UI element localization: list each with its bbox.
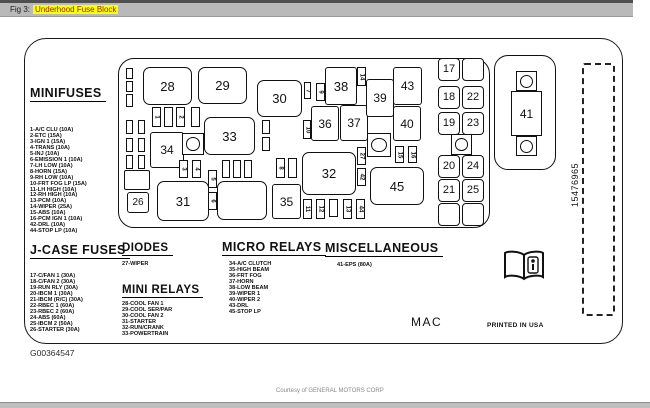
minifuse-blank — [138, 155, 145, 169]
component-box-37: 37 — [340, 105, 368, 141]
bolt-hole-icon — [520, 140, 533, 153]
legend-miscellaneous-heading: MISCELLANEOUS — [325, 241, 443, 257]
legend-jcase-fuses: J-CASE FUSES 17-C/FAN 1 (30A)18-C/FAN 2 … — [30, 241, 130, 334]
legend-diodes: DIODES 27-WIPER — [122, 238, 173, 268]
legend-miscellaneous: MISCELLANEOUS 41-EPS (80A) — [325, 239, 443, 269]
jcase-fuse-22: 22 — [462, 86, 484, 109]
component-box-38: 38 — [325, 67, 357, 105]
minifuse-blank — [138, 120, 145, 134]
legend-micro-relays: MICRO RELAYS 34-A/C CLUTCH35-HIGH BEAM36… — [222, 238, 326, 316]
jcase-fuse-21: 21 — [438, 179, 460, 202]
minifuse-6: 6 — [208, 192, 217, 210]
component-box-36: 36 — [311, 106, 339, 141]
minifuse-blank — [126, 155, 133, 169]
component-box-28: 28 — [143, 67, 192, 105]
minifuse-11: 11 — [303, 199, 312, 219]
bolt-hole — [451, 134, 472, 155]
minifuse-27: 27 — [357, 147, 366, 165]
minifuse-15: 15 — [395, 146, 404, 163]
legend-item: 44-STOP LP (10A) — [30, 229, 106, 235]
component-box-40: 40 — [393, 106, 421, 141]
minifuse-44: 44 — [356, 199, 365, 219]
component-box-33: 33 — [204, 117, 255, 155]
minifuse-blank — [329, 199, 338, 217]
mega-fuse-41: 41 — [511, 91, 542, 136]
legend-item: 41-EPS (80A) — [337, 263, 443, 269]
mega-fuse-top-terminal — [516, 71, 537, 91]
minifuse-9: 9 — [316, 83, 325, 101]
minifuse-blank — [191, 107, 200, 127]
legend-diodes-heading: DIODES — [122, 242, 173, 256]
minifuse-42: 42 — [357, 168, 366, 186]
minifuse-1: 1 — [152, 107, 161, 127]
minifuse-3: 3 — [179, 160, 188, 178]
jcase-fuse-25: 25 — [462, 179, 484, 202]
legend-item: 33-POWERTRAIN — [122, 332, 203, 338]
mega-fuse-bottom-terminal — [516, 136, 537, 156]
figure-id-label: G00364547 — [30, 348, 74, 358]
minifuse-blank — [233, 160, 241, 178]
jcase-fuse-blank — [462, 203, 484, 226]
minifuse-blank — [262, 137, 270, 151]
legend-jcase-heading: J-CASE FUSES — [30, 243, 130, 259]
jcase-fuse-19: 19 — [438, 112, 460, 135]
legend-diodes-list: 27-WIPER — [122, 262, 173, 268]
minifuse-blank — [126, 120, 133, 134]
bolt-hole — [367, 133, 391, 157]
jcase-fuse-23: 23 — [462, 112, 484, 135]
mac-label: MAC — [411, 315, 442, 329]
minifuse-7: 7 — [304, 82, 311, 99]
minifuse-blank — [288, 158, 297, 178]
component-box-29: 29 — [198, 67, 247, 104]
component-box-39: 39 — [366, 79, 394, 117]
legend-micro-relays-heading: MICRO RELAYS — [222, 240, 326, 256]
minifuse-14: 14 — [357, 67, 366, 86]
legend-minifuses-list: 1-A/C CLU (10A)2-ETC (15A)3-IGN 1 (15A)4… — [30, 128, 106, 235]
minifuse-13: 13 — [343, 199, 352, 219]
part-number-vertical: 15476965 — [570, 149, 580, 221]
minifuse-blank — [126, 81, 133, 92]
minifuse-blank — [126, 68, 133, 79]
minifuse-10: 10 — [303, 120, 311, 139]
legend-item: 26-STARTER (30A) — [30, 328, 130, 334]
legend-mini-relays-heading: MINI RELAYS — [122, 284, 203, 298]
component-box-blank — [217, 181, 267, 220]
legend-jcase-list: 17-C/FAN 1 (30A)18-C/FAN 2 (30A)19-RUN R… — [30, 274, 130, 334]
minifuse-2: 2 — [176, 107, 185, 127]
minifuse-12: 12 — [316, 199, 325, 219]
connector-slot-dashed — [582, 63, 615, 316]
legend-mini-relays-list: 28-COOL FAN 129-COOL SER/PAR30-COOL FAN … — [122, 302, 203, 338]
component-box-45: 45 — [370, 167, 424, 205]
minifuse-4: 4 — [192, 160, 201, 178]
legend-mini-relays: MINI RELAYS 28-COOL FAN 129-COOL SER/PAR… — [122, 280, 203, 338]
minifuse-blank — [222, 160, 230, 178]
mega-fuse-label: 41 — [520, 107, 533, 121]
legend-item: 27-WIPER — [122, 262, 173, 268]
legend-minifuses-heading: MINIFUSES — [30, 86, 106, 102]
courtesy-label: Courtesy of GENERAL MOTORS CORP — [276, 388, 384, 394]
minifuse-blank — [138, 138, 145, 152]
legend-miscellaneous-list: 41-EPS (80A) — [325, 263, 443, 269]
legend-minifuses: MINIFUSES 1-A/C CLU (10A)2-ETC (15A)3-IG… — [30, 84, 106, 235]
legend-micro-relays-list: 34-A/C CLUTCH35-HIGH BEAM36-FRT FOG37-HO… — [222, 262, 326, 316]
jcase-fuse-blank — [462, 58, 484, 81]
component-box-26: 26 — [127, 192, 149, 213]
component-box-32: 32 — [302, 152, 356, 195]
minifuse-blank — [244, 160, 252, 178]
component-box-30: 30 — [257, 80, 302, 117]
minifuse-blank — [126, 94, 133, 107]
bolt-hole — [182, 133, 204, 155]
minifuse-8: 8 — [276, 158, 285, 178]
legend-item: 45-STOP LP — [229, 310, 326, 316]
mega-fuse-41-assembly: 41 — [494, 55, 556, 170]
component-box-43: 43 — [393, 67, 422, 105]
owners-manual-icon — [502, 249, 546, 283]
printed-in-usa-label: PRINTED IN USA — [487, 322, 544, 329]
page: Fig 3: Underhood Fuse Block 41 15476965 … — [0, 0, 650, 408]
jcase-fuse-18: 18 — [438, 86, 460, 109]
jcase-fuse-17: 17 — [438, 58, 460, 81]
component-box-blank — [124, 170, 150, 190]
jcase-fuse-24: 24 — [462, 155, 484, 178]
component-box-31: 31 — [157, 181, 209, 221]
minifuse-16: 16 — [408, 146, 417, 163]
jcase-fuse-20: 20 — [438, 155, 460, 178]
minifuse-blank — [164, 107, 173, 127]
component-box-35: 35 — [272, 184, 301, 219]
minifuse-blank — [126, 138, 133, 152]
minifuse-blank — [262, 120, 270, 134]
minifuse-5: 5 — [208, 170, 217, 188]
bolt-hole-icon — [520, 75, 533, 88]
window-bottom-edge — [0, 402, 650, 408]
jcase-fuse-blank — [438, 203, 460, 226]
